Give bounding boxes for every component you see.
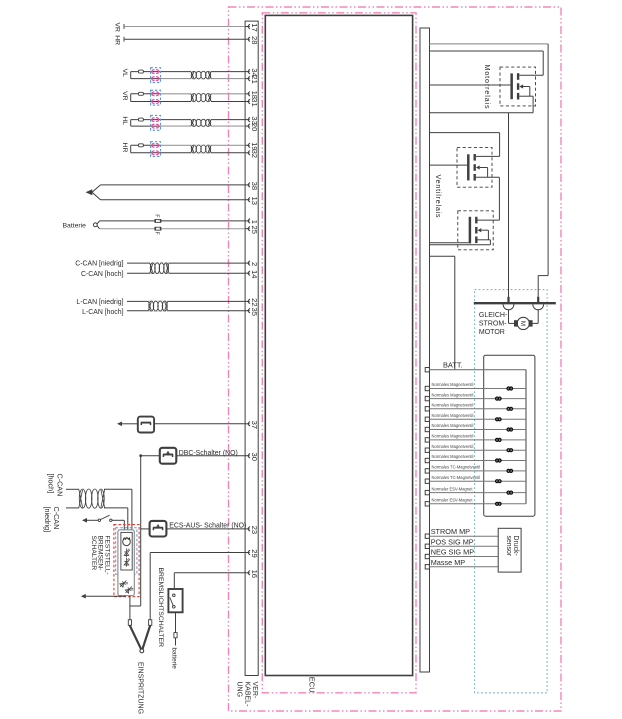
svg-text:C-CAN [hoch]: C-CAN [hoch] bbox=[81, 271, 124, 278]
svg-text:STROM-: STROM- bbox=[479, 320, 507, 327]
svg-text:ECS-AUS- Schalter (NO): ECS-AUS- Schalter (NO) bbox=[169, 523, 246, 530]
svg-text:BATT.: BATT. bbox=[443, 361, 463, 370]
svg-text:F: F bbox=[153, 214, 159, 217]
svg-text:Normales Magnetventil: Normales Magnetventil bbox=[432, 382, 474, 387]
svg-text:STROM MP: STROM MP bbox=[431, 527, 470, 536]
svg-text:22: 22 bbox=[250, 298, 259, 306]
svg-text:GLEICH-: GLEICH- bbox=[479, 312, 508, 319]
svg-text:Motorrelais: Motorrelais bbox=[483, 65, 492, 110]
svg-text:29: 29 bbox=[250, 549, 259, 557]
svg-text:35: 35 bbox=[250, 307, 259, 315]
svg-text:Normales Magnetventil: Normales Magnetventil bbox=[432, 413, 474, 418]
svg-text:Normaler ESV-Magnet: Normaler ESV-Magnet bbox=[432, 486, 474, 491]
svg-text:14: 14 bbox=[250, 270, 259, 278]
svg-text:Masse MP: Masse MP bbox=[431, 558, 466, 567]
svg-text:Ventilrelais: Ventilrelais bbox=[434, 175, 443, 219]
svg-text:MOTOR: MOTOR bbox=[479, 329, 505, 336]
svg-text:23: 23 bbox=[250, 526, 259, 534]
svg-text:Normales Magnetventil: Normales Magnetventil bbox=[432, 444, 474, 449]
svg-text:13: 13 bbox=[250, 196, 259, 204]
svg-text:C-CAN[hoch]: C-CAN[hoch] bbox=[46, 474, 64, 497]
svg-text:HL: HL bbox=[121, 116, 128, 125]
svg-text:38: 38 bbox=[250, 182, 259, 190]
svg-text:M: M bbox=[519, 321, 526, 326]
svg-text:Normales TC-Magnetventil: Normales TC-Magnetventil bbox=[432, 465, 481, 470]
svg-text:Normales TC-Magnetventil: Normales TC-Magnetventil bbox=[432, 475, 481, 480]
svg-text:EINSPRITZUNG: EINSPRITZUNG bbox=[137, 662, 144, 714]
svg-text:32: 32 bbox=[250, 150, 259, 158]
svg-text:16: 16 bbox=[250, 570, 259, 578]
svg-text:NEG SIG MP: NEG SIG MP bbox=[431, 548, 475, 557]
svg-text:25: 25 bbox=[250, 225, 259, 233]
svg-text:30: 30 bbox=[250, 452, 259, 460]
svg-text:batterie: batterie bbox=[170, 648, 177, 670]
svg-text:L-CAN [niedrig]: L-CAN [niedrig] bbox=[76, 299, 123, 306]
svg-text:20: 20 bbox=[250, 123, 259, 131]
svg-text:L-CAN [hoch]: L-CAN [hoch] bbox=[82, 309, 123, 316]
svg-text:21: 21 bbox=[250, 75, 259, 83]
svg-text:1: 1 bbox=[250, 220, 259, 224]
svg-text:C-CAN [niedrig]: C-CAN [niedrig] bbox=[75, 261, 123, 268]
svg-text:Normales Magnetventil: Normales Magnetventil bbox=[432, 434, 474, 439]
svg-text:FESTSTELL-BREMSEN-SCHALTER: FESTSTELL-BREMSEN-SCHALTER bbox=[90, 536, 110, 575]
svg-text:Druck-sensor: Druck-sensor bbox=[505, 536, 519, 557]
svg-text:28: 28 bbox=[250, 36, 259, 44]
svg-text:VR: VR bbox=[121, 91, 128, 101]
svg-text:HR: HR bbox=[114, 35, 121, 45]
svg-text:BREMSLICHTSCHALTER: BREMSLICHTSCHALTER bbox=[157, 568, 164, 648]
svg-text:POS SIG MP: POS SIG MP bbox=[431, 537, 474, 546]
svg-text:VL: VL bbox=[121, 69, 128, 78]
svg-text:17: 17 bbox=[250, 23, 259, 31]
svg-text:Normales Magnetventil: Normales Magnetventil bbox=[432, 403, 474, 408]
svg-text:HR: HR bbox=[121, 143, 128, 153]
svg-text:DBC-Schalter (NO): DBC-Schalter (NO) bbox=[179, 450, 238, 457]
svg-text:VR: VR bbox=[114, 23, 121, 33]
svg-text:37: 37 bbox=[250, 421, 259, 429]
svg-text:F: F bbox=[153, 232, 159, 235]
svg-text:ECU: ECU bbox=[308, 677, 317, 693]
svg-text:Batterie: Batterie bbox=[63, 222, 87, 229]
svg-text:Normaler ESV-Magnet: Normaler ESV-Magnet bbox=[432, 498, 474, 503]
svg-text:Normales Magnetventil: Normales Magnetventil bbox=[432, 423, 474, 428]
svg-text:31: 31 bbox=[250, 98, 259, 106]
svg-text:Normales Magnetventil: Normales Magnetventil bbox=[432, 392, 474, 397]
svg-text:2: 2 bbox=[250, 262, 259, 266]
svg-text:Normales Magnetventil: Normales Magnetventil bbox=[432, 454, 474, 459]
svg-text:C-CAN[niedrig]: C-CAN[niedrig] bbox=[43, 507, 61, 533]
